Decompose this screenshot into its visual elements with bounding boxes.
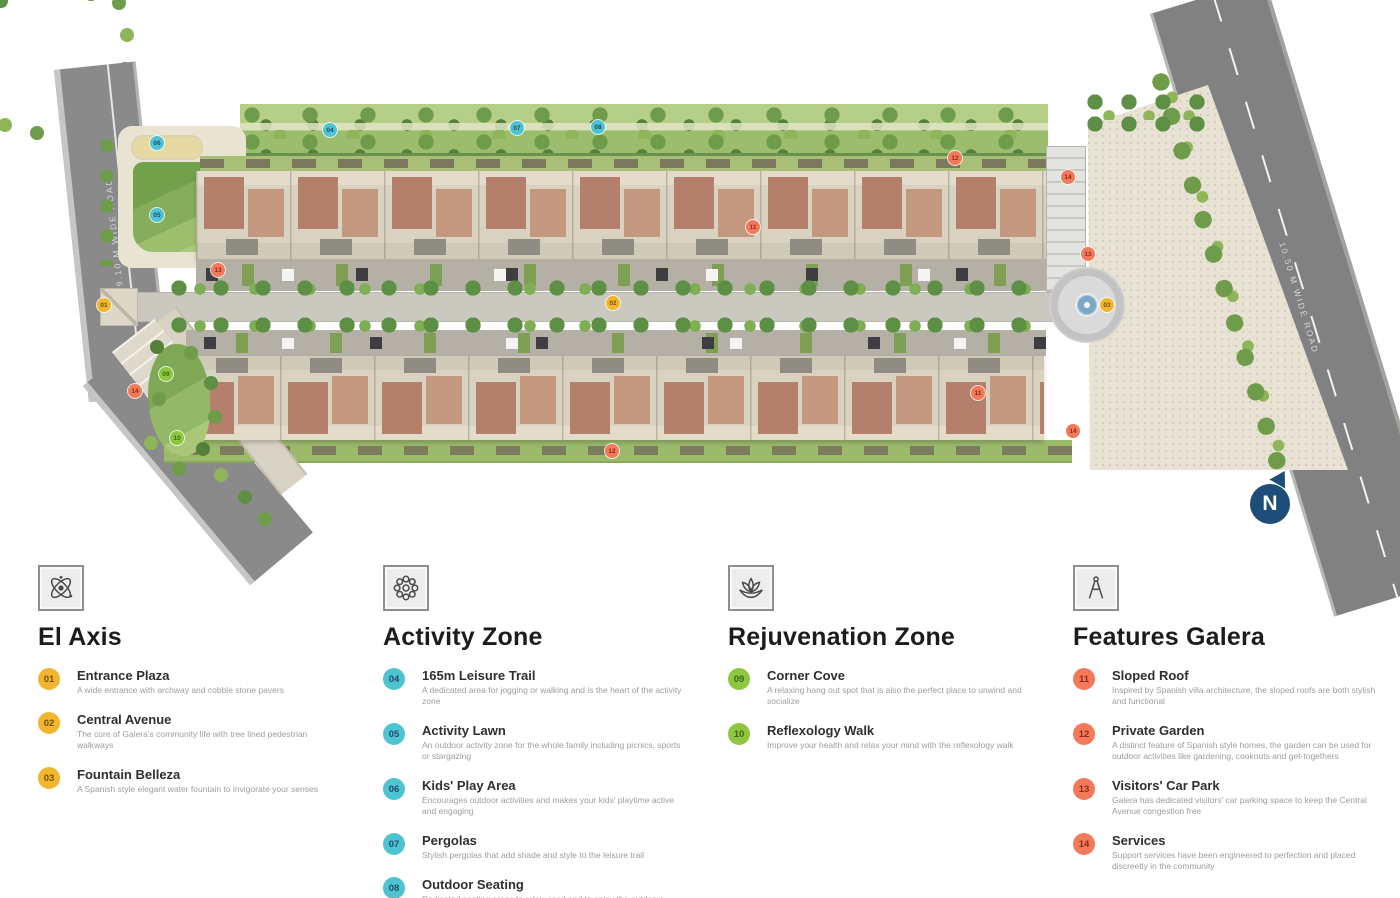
map-marker: 10: [170, 431, 184, 445]
legend-item-desc: Support services have been engineered to…: [1112, 850, 1380, 872]
legend-item-desc: Improve your health and relax your mind …: [767, 740, 1014, 751]
legend-item-number: 13: [1073, 778, 1095, 800]
legend-item-number: 09: [728, 668, 750, 690]
map-marker-number: 07: [513, 125, 520, 132]
legend-item-name: Central Avenue: [77, 712, 345, 727]
legend-item-number: 01: [38, 668, 60, 690]
map-marker-number: 14: [1069, 428, 1076, 435]
map-marker: 01: [97, 298, 111, 312]
map-marker-number: 04: [326, 127, 333, 134]
map-marker: 07: [510, 121, 524, 135]
legend-item-list: 09 Corner Cove A relaxing hang out spot …: [728, 668, 1048, 751]
map-marker-number: 14: [131, 388, 138, 395]
legend-item-name: Private Garden: [1112, 723, 1380, 738]
legend-section-activity-zone: Activity Zone 04 165m Leisure Trail A de…: [383, 565, 703, 898]
map-marker-number: 10: [173, 435, 180, 442]
tree-cluster: [150, 340, 164, 354]
legend-item-number: 08: [383, 877, 405, 898]
legend-item-number: 02: [38, 712, 60, 734]
map-marker-number: 06: [153, 140, 160, 147]
leisure-trail-strip: [240, 104, 1048, 156]
legend-item-name: Activity Lawn: [422, 723, 690, 738]
map-marker: 13: [1081, 247, 1095, 261]
legend-item: 08 Outdoor Seating Dedicated seating are…: [383, 877, 703, 898]
north-letter: N: [1250, 484, 1290, 524]
legend-section-title: Features Galera: [1073, 623, 1393, 652]
legend-item-desc: Galera has dedicated visitors' car parki…: [1112, 795, 1380, 817]
legend-item-name: Pergolas: [422, 833, 644, 848]
legend-item: 12 Private Garden A distinct feature of …: [1073, 723, 1393, 762]
map-marker-number: 08: [594, 124, 601, 131]
legend-section-features-galera: Features Galera 11 Sloped Roof Inspired …: [1073, 565, 1393, 898]
legend-item-name: Visitors' Car Park: [1112, 778, 1380, 793]
tree-line: [96, 134, 118, 266]
axis-icon: [38, 565, 84, 611]
map-marker: 14: [128, 384, 142, 398]
map-marker: 02: [606, 296, 620, 310]
kids-play-area: [131, 135, 203, 160]
rejuvenation-icon: [728, 565, 774, 611]
features-icon: [1073, 565, 1119, 611]
legend-item: 11 Sloped Roof Inspired by Spanish villa…: [1073, 668, 1393, 707]
map-marker: 08: [591, 120, 605, 134]
legend-item-desc: A dedicated area for jogging or walking …: [422, 685, 690, 707]
legend-item-name: Services: [1112, 833, 1380, 848]
legend-item-list: 11 Sloped Roof Inspired by Spanish villa…: [1073, 668, 1393, 872]
map-marker: 03: [1100, 298, 1114, 312]
legend-item-name: Entrance Plaza: [77, 668, 284, 683]
park-trees: [0, 0, 8, 8]
map-marker: 12: [605, 444, 619, 458]
legend-section-rejuvenation-zone: Rejuvenation Zone 09 Corner Cove A relax…: [728, 565, 1048, 898]
legend-item: 10 Reflexology Walk Improve your health …: [728, 723, 1048, 751]
legend-item-name: Outdoor Seating: [422, 877, 664, 892]
legend-item-name: 165m Leisure Trail: [422, 668, 690, 683]
legend-item-name: Fountain Belleza: [77, 767, 318, 782]
legend-section-title: El Axis: [38, 623, 358, 652]
legend-item-desc: Encourages outdoor activities and makes …: [422, 795, 690, 817]
garden-fence-strip: [200, 156, 1048, 171]
legend-item: 01 Entrance Plaza A wide entrance with a…: [38, 668, 358, 696]
map-marker-number: 09: [162, 371, 169, 378]
legend-item: 04 165m Leisure Trail A dedicated area f…: [383, 668, 703, 707]
legend-item-number: 10: [728, 723, 750, 745]
map-marker-number: 12: [608, 448, 615, 455]
map-marker-number: 13: [1084, 251, 1091, 258]
map-marker-number: 14: [1064, 174, 1071, 181]
legend-item-desc: A Spanish style elegant water fountain t…: [77, 784, 318, 795]
map-marker: 05: [150, 208, 164, 222]
legend-item-name: Reflexology Walk: [767, 723, 1014, 738]
map-marker-number: 02: [609, 300, 616, 307]
map-marker-number: 11: [750, 224, 757, 231]
legend-item-desc: A relaxing hang out spot that is also th…: [767, 685, 1035, 707]
legend-item-number: 04: [383, 668, 405, 690]
legend-item-number: 03: [38, 767, 60, 789]
legend-item-desc: A distinct feature of Spanish style home…: [1112, 740, 1380, 762]
map-marker: 11: [746, 220, 760, 234]
legend-item-desc: Inspired by Spanish villa architecture, …: [1112, 685, 1380, 707]
legend-item: 14 Services Support services have been e…: [1073, 833, 1393, 872]
legend-item-number: 05: [383, 723, 405, 745]
legend-item-name: Kids' Play Area: [422, 778, 690, 793]
map-marker-number: 13: [214, 267, 221, 274]
legend-item-desc: Dedicated seating areas to relax, read a…: [422, 894, 664, 898]
legend-item-number: 14: [1073, 833, 1095, 855]
legend-item-number: 07: [383, 833, 405, 855]
housing-row-north: [196, 171, 1046, 259]
legend-item-name: Sloped Roof: [1112, 668, 1380, 683]
map-marker-number: 11: [975, 390, 982, 397]
legend-item-desc: Stylish pergolas that add shade and styl…: [422, 850, 644, 861]
tree-cluster: [1085, 92, 1205, 132]
legend-item-desc: The core of Galera's community life with…: [77, 729, 345, 751]
housing-row-south: [186, 356, 1044, 440]
map-marker: 14: [1066, 424, 1080, 438]
legend-section-el-axis: El Axis 01 Entrance Plaza A wide entranc…: [38, 565, 358, 898]
site-plan: 9.10 M WIDE ROAD 10.50 M WIDE ROAD N 01: [0, 0, 1400, 562]
map-marker-number: 12: [951, 155, 958, 162]
legend-section-title: Rejuvenation Zone: [728, 623, 1048, 652]
legend-item-number: 06: [383, 778, 405, 800]
legend-item-number: 12: [1073, 723, 1095, 745]
activity-zone-icon: [383, 565, 429, 611]
map-marker: 14: [1061, 170, 1075, 184]
legend-item: 03 Fountain Belleza A Spanish style eleg…: [38, 767, 358, 795]
avenue-trees-south: [170, 317, 1050, 334]
legend-item-number: 11: [1073, 668, 1095, 690]
legend-section-title: Activity Zone: [383, 623, 703, 652]
map-marker: 04: [323, 123, 337, 137]
map-marker: 12: [948, 151, 962, 165]
avenue-trees-north: [170, 280, 1050, 297]
legend-item-list: 01 Entrance Plaza A wide entrance with a…: [38, 668, 358, 795]
legend-item: 05 Activity Lawn An outdoor activity zon…: [383, 723, 703, 762]
fountain-icon: [1075, 293, 1099, 317]
legend-item-name: Corner Cove: [767, 668, 1035, 683]
map-marker: 09: [159, 367, 173, 381]
map-marker-number: 01: [100, 302, 107, 309]
map-marker-number: 05: [153, 212, 160, 219]
map-marker: 13: [211, 263, 225, 277]
legend-item-desc: An outdoor activity zone for the whole f…: [422, 740, 690, 762]
legend: El Axis 01 Entrance Plaza A wide entranc…: [0, 565, 1400, 898]
legend-item: 02 Central Avenue The core of Galera's c…: [38, 712, 358, 751]
map-marker: 11: [971, 386, 985, 400]
legend-item: 07 Pergolas Stylish pergolas that add sh…: [383, 833, 703, 861]
legend-item: 09 Corner Cove A relaxing hang out spot …: [728, 668, 1048, 707]
north-compass: N: [1238, 468, 1308, 538]
legend-item-list: 04 165m Leisure Trail A dedicated area f…: [383, 668, 703, 898]
legend-item: 06 Kids' Play Area Encourages outdoor ac…: [383, 778, 703, 817]
legend-item: 13 Visitors' Car Park Galera has dedicat…: [1073, 778, 1393, 817]
map-marker-number: 03: [1103, 302, 1110, 309]
map-marker: 06: [150, 136, 164, 150]
legend-item-desc: A wide entrance with archway and cobble …: [77, 685, 284, 696]
